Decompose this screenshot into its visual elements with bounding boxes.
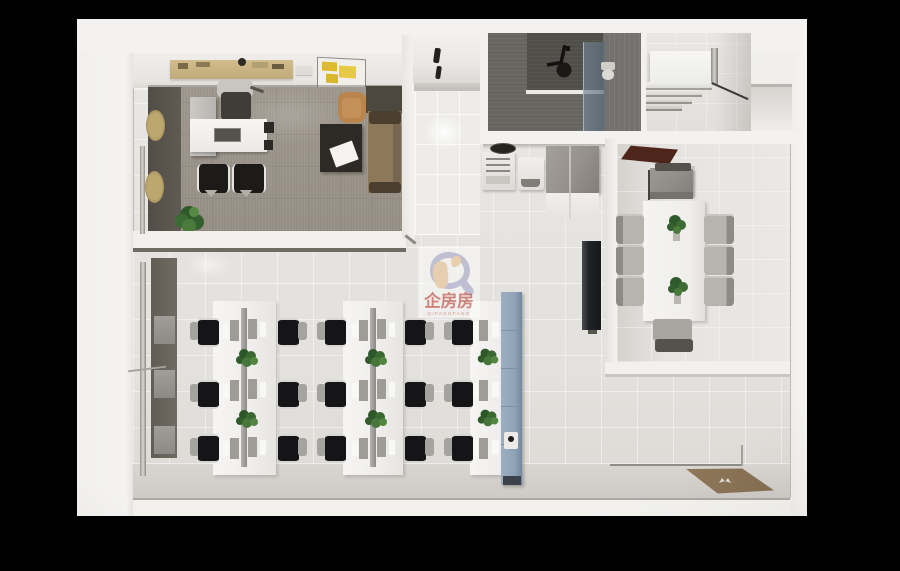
svg-text:企房房: 企房房 [423,291,474,311]
svg-text:QIFANGFANG: QIFANGFANG [427,311,470,317]
